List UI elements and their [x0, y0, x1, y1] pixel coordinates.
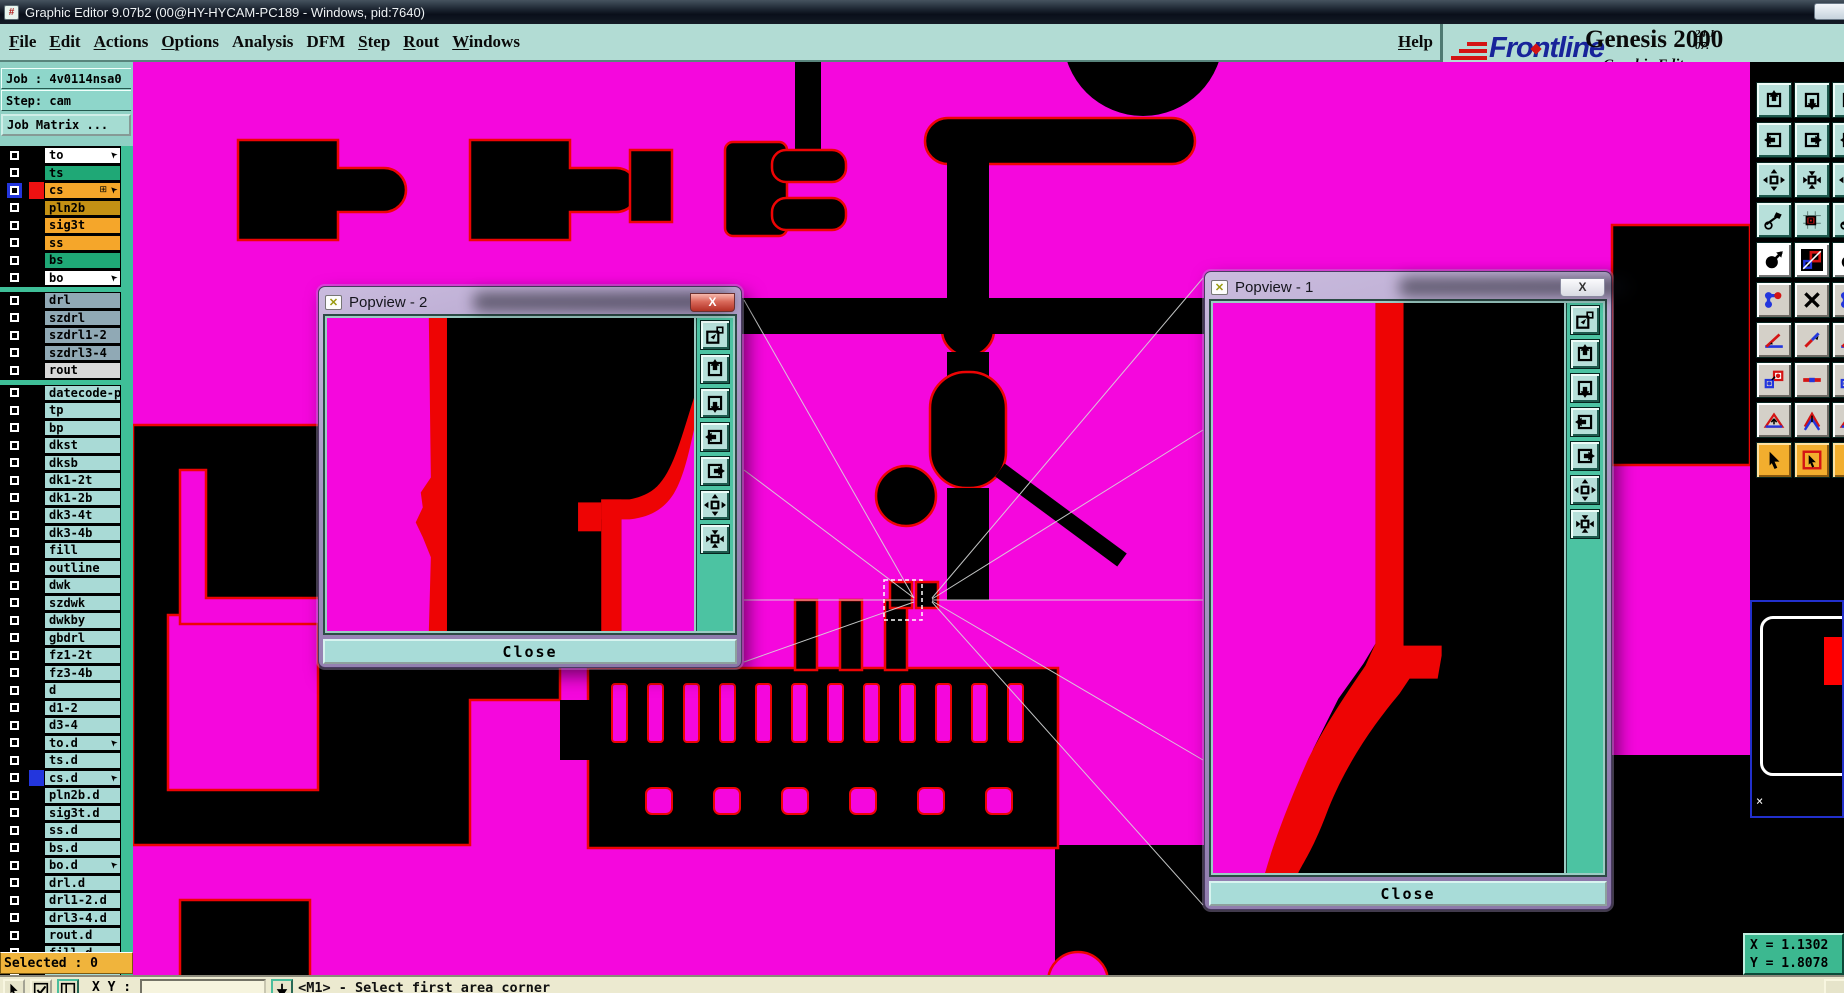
menu-item-help[interactable]: Help [1398, 32, 1433, 52]
layer-color-swatch[interactable] [29, 507, 44, 524]
layer-visibility-checkbox[interactable] [10, 221, 19, 230]
layer-color-swatch[interactable] [29, 927, 44, 944]
popview-1-canvas[interactable] [1213, 303, 1564, 873]
layer-name[interactable]: dk3-4t [44, 507, 121, 524]
tools-button[interactable] [1756, 202, 1792, 238]
layer-color-swatch[interactable] [29, 717, 44, 734]
layer-name[interactable]: szdrl [44, 310, 121, 327]
layer-row[interactable]: rout [0, 362, 121, 379]
layer-visibility-checkbox[interactable] [10, 773, 19, 782]
pan-down-button[interactable] [1570, 373, 1600, 403]
layer-visibility-checkbox[interactable] [10, 721, 19, 730]
clip-area-icon [1801, 209, 1823, 231]
window-title: Graphic Editor 9.07b2 (00@HY-HYCAM-PC189… [25, 5, 425, 20]
layer-row[interactable]: gbdrl [0, 630, 121, 647]
layer-name[interactable]: dk1-2t [44, 472, 121, 489]
layer-name[interactable]: datecode-pbo [44, 385, 121, 402]
layer-row[interactable]: fz1-2t [0, 647, 121, 664]
layer-visibility-checkbox[interactable] [10, 406, 19, 415]
measure-line-button[interactable] [1794, 322, 1830, 358]
layer-checkbox-cell [0, 703, 29, 712]
popview-2-close-button[interactable]: Close [323, 639, 737, 664]
toolbar-button-clipped[interactable] [1832, 122, 1844, 158]
layer-visibility-checkbox[interactable] [10, 528, 19, 537]
layer-row[interactable]: dk3-4t [0, 507, 121, 524]
tools-icon [1763, 209, 1785, 231]
layer-row[interactable]: drl [0, 292, 121, 309]
layer-visibility-checkbox[interactable] [10, 256, 19, 265]
layer-name[interactable]: pln2b [44, 200, 121, 217]
layer-color-swatch[interactable] [29, 165, 44, 182]
selected-count: Selected : 0 [0, 952, 133, 974]
layer-name[interactable]: bs [44, 252, 121, 269]
layer-row[interactable]: dwkby [0, 612, 121, 629]
layer-color-swatch[interactable] [29, 630, 44, 647]
layer-name[interactable]: outline [44, 560, 121, 577]
menu-item-edit[interactable]: Edit [49, 32, 80, 52]
pointer-mode-button[interactable] [1756, 442, 1792, 478]
zoom-contract-button[interactable] [1756, 162, 1792, 198]
popview-1-title: Popview - 1 [1235, 279, 1313, 296]
layer-color-swatch[interactable] [29, 147, 44, 164]
zoom-expand-button[interactable] [1794, 162, 1830, 198]
layer-checkbox-cell [0, 331, 29, 340]
frontline-speedlines-icon [1451, 42, 1487, 64]
layer-name[interactable]: rout.d [44, 927, 121, 944]
layer-visibility-checkbox[interactable] [10, 581, 19, 590]
layer-checkbox-cell [0, 616, 29, 625]
layer-name[interactable]: szdrl3-4 [44, 345, 121, 362]
layer-color-swatch[interactable] [29, 647, 44, 664]
zoom-expand-button[interactable] [700, 524, 730, 554]
layer-color-swatch[interactable] [29, 420, 44, 437]
clip-area-button[interactable] [1794, 202, 1830, 238]
popview-1-close-icon[interactable]: X [1560, 278, 1605, 297]
layer-name[interactable]: tp [44, 402, 121, 419]
zoom-contract-button[interactable] [700, 490, 730, 520]
layer-visibility-checkbox[interactable] [10, 843, 19, 852]
layer-color-swatch[interactable] [29, 182, 44, 199]
measure-line-icon [1801, 329, 1823, 351]
copy-feature-button[interactable] [1756, 362, 1792, 398]
layer-color-swatch[interactable] [29, 752, 44, 769]
layer-name[interactable]: d1-2 [44, 700, 121, 717]
layer-row[interactable]: ts [0, 165, 121, 182]
layer-visibility-checkbox[interactable] [10, 366, 19, 375]
layer-visibility-checkbox[interactable] [10, 186, 19, 195]
layer-name[interactable]: ts [44, 165, 121, 182]
pan-right-button[interactable] [700, 456, 730, 486]
popview-2-window[interactable]: ✕ Popview - 2 X Close [318, 286, 742, 668]
layer-row[interactable]: cs.d➤ [0, 770, 121, 787]
layer-color-swatch[interactable] [29, 385, 44, 402]
layer-color-swatch[interactable] [29, 490, 44, 507]
layer-visibility-checkbox[interactable] [10, 651, 19, 660]
minimap-panel[interactable]: × [1750, 600, 1844, 818]
layer-color-swatch[interactable] [29, 472, 44, 489]
measure-angle-icon [1763, 329, 1785, 351]
layer-row[interactable]: bs.d [0, 840, 121, 857]
layer-row[interactable]: fz3-4b [0, 665, 121, 682]
coordinate-input[interactable] [140, 979, 266, 993]
layer-row[interactable]: drl3-4.d [0, 910, 121, 927]
toolbar-button-clipped[interactable] [1832, 402, 1844, 438]
layer-color-swatch[interactable] [29, 665, 44, 682]
layer-color-swatch[interactable] [29, 542, 44, 559]
layer-visibility-checkbox[interactable] [10, 913, 19, 922]
menu-item-actions[interactable]: Actions [94, 32, 149, 52]
layer-color-swatch[interactable] [29, 910, 44, 927]
layer-row[interactable]: bo.d➤ [0, 857, 121, 874]
popview-2-titlebar[interactable]: ✕ Popview - 2 X [323, 290, 737, 314]
layer-color-swatch[interactable] [29, 822, 44, 839]
layer-color-swatch[interactable] [29, 840, 44, 857]
layer-checkbox-cell [0, 581, 29, 590]
toolbar-button-clipped[interactable] [1832, 322, 1844, 358]
layer-row[interactable]: to➤ [0, 147, 121, 164]
layer-color-swatch[interactable] [29, 217, 44, 234]
view-pan-left-icon [1763, 129, 1785, 151]
layer-visibility-checkbox[interactable] [10, 686, 19, 695]
layer-name[interactable]: szdrl1-2 [44, 327, 121, 344]
layer-name[interactable]: rout [44, 362, 121, 379]
layer-checkbox-cell [0, 913, 29, 922]
layer-visibility-checkbox[interactable] [10, 791, 19, 800]
layer-visibility-checkbox[interactable] [10, 348, 19, 357]
view-pan-right-icon [1801, 129, 1823, 151]
layer-name[interactable]: fz1-2t [44, 647, 121, 664]
layer-color-swatch[interactable] [29, 437, 44, 454]
layer-name[interactable]: pln2b.d [44, 787, 121, 804]
layer-visibility-checkbox[interactable] [10, 808, 19, 817]
layer-visibility-checkbox[interactable] [10, 633, 19, 642]
layer-compare-button[interactable] [1794, 242, 1830, 278]
minimap-origin-mark: × [1756, 794, 1763, 808]
down-arrow-icon[interactable] [271, 979, 293, 993]
layer-row[interactable]: datecode-pbo [0, 385, 121, 402]
popout-button[interactable] [700, 320, 730, 350]
layer-name[interactable]: bs.d [44, 840, 121, 857]
layer-visibility-checkbox[interactable] [10, 151, 19, 160]
layer-name[interactable]: drl1-2.d [44, 892, 121, 909]
add-arrow-button[interactable] [1794, 402, 1830, 438]
popview-2-canvas[interactable] [327, 318, 694, 631]
layer-visibility-checkbox[interactable] [10, 458, 19, 467]
layer-visibility-checkbox[interactable] [10, 273, 19, 282]
layer-row[interactable]: cs⊞➤ [0, 182, 121, 199]
menu-item-analysis[interactable]: Analysis [232, 32, 293, 52]
datetime-display: 24 J07: [1695, 28, 1714, 52]
layer-color-swatch[interactable] [29, 327, 44, 344]
layer-checkbox-cell [0, 151, 29, 160]
pan-left-button[interactable] [700, 422, 730, 452]
layer-name[interactable]: drl3-4.d [44, 910, 121, 927]
layer-visibility-checkbox[interactable] [10, 203, 19, 212]
layer-visibility-checkbox[interactable] [10, 168, 19, 177]
layer-color-swatch[interactable] [29, 770, 44, 787]
layer-visibility-checkbox[interactable] [10, 826, 19, 835]
layer-color-swatch[interactable] [29, 612, 44, 629]
popview-2-toolbar [696, 318, 733, 631]
layer-checkbox-cell [0, 186, 29, 195]
layer-row[interactable]: dk3-4b [0, 525, 121, 542]
layer-checkbox-cell [0, 686, 29, 695]
layer-color-swatch[interactable] [29, 892, 44, 909]
zoom-contract-icon [1763, 169, 1785, 191]
layer-name[interactable]: dk3-4b [44, 525, 121, 542]
layer-checkbox-cell [0, 843, 29, 852]
pan-up-button[interactable] [1570, 339, 1600, 369]
copy-feature-icon [1763, 369, 1785, 391]
job-matrix-button[interactable]: Job Matrix ... [1, 114, 131, 136]
stretch-feature-button[interactable] [1794, 362, 1830, 398]
layer-visibility-checkbox[interactable] [10, 756, 19, 765]
layer-row[interactable]: szdrl [0, 310, 121, 327]
layer-name[interactable]: gbdrl [44, 630, 121, 647]
layer-row[interactable]: bo➤ [0, 270, 121, 287]
layer-visibility-checkbox[interactable] [10, 441, 19, 450]
check-icon[interactable] [30, 979, 52, 993]
popview-1-toolbar [1566, 303, 1603, 873]
layer-color-swatch[interactable] [29, 875, 44, 892]
layer-name[interactable]: ss.d [44, 822, 121, 839]
layer-checkbox-cell [0, 668, 29, 677]
layer-visibility-checkbox[interactable] [10, 313, 19, 322]
layer-row[interactable]: ss.d [0, 822, 121, 839]
pan-left-button[interactable] [1570, 407, 1600, 437]
popout-button[interactable] [1570, 305, 1600, 335]
layer-visibility-checkbox[interactable] [10, 861, 19, 870]
popview-2-close-icon[interactable]: X [690, 293, 735, 312]
layer-visibility-checkbox[interactable] [10, 668, 19, 677]
add-polygon-button[interactable] [1756, 402, 1792, 438]
pan-right-button[interactable] [1570, 441, 1600, 471]
layer-name[interactable]: fill [44, 542, 121, 559]
menu-item-dfm[interactable]: DFM [306, 32, 345, 52]
layer-name[interactable]: szdwk [44, 595, 121, 612]
layer-visibility-checkbox[interactable] [10, 476, 19, 485]
layer-row[interactable]: szdrl3-4 [0, 345, 121, 362]
layer-name[interactable]: dwk [44, 577, 121, 594]
layer-row[interactable]: drl.d [0, 875, 121, 892]
layer-visibility-checkbox[interactable] [10, 896, 19, 905]
layer-visibility-checkbox[interactable] [10, 878, 19, 887]
pan-down-button[interactable] [700, 388, 730, 418]
layer-name[interactable]: dk1-2b [44, 490, 121, 507]
toolbar-button-clipped[interactable] [1832, 82, 1844, 118]
popview-1-window[interactable]: ✕ Popview - 1 X Close [1204, 271, 1612, 910]
layer-color-swatch[interactable] [29, 700, 44, 717]
layer-color-swatch[interactable] [29, 682, 44, 699]
layer-color-swatch[interactable] [29, 805, 44, 822]
layer-name[interactable]: ss [44, 235, 121, 252]
layer-visibility-checkbox[interactable] [10, 616, 19, 625]
layer-list-column: to➤tscs⊞➤pln2bsig3tssbsbo➤drlszdrlszdrl1… [0, 146, 121, 981]
layer-color-swatch[interactable] [29, 595, 44, 612]
view-pan-left-button[interactable] [1756, 122, 1792, 158]
view-pan-right-button[interactable] [1794, 122, 1830, 158]
pan-up-button[interactable] [700, 354, 730, 384]
layer-name[interactable]: d [44, 682, 121, 699]
menu-item-help[interactable]: Help [1398, 24, 1433, 60]
add-polygon-icon [1763, 409, 1785, 431]
layer-checkbox-cell [0, 528, 29, 537]
layer-color-swatch[interactable] [29, 310, 44, 327]
minimap-view-marker [1824, 637, 1844, 685]
layer-row[interactable]: drl1-2.d [0, 892, 121, 909]
window-titlebar[interactable]: # Graphic Editor 9.07b2 (00@HY-HYCAM-PC1… [0, 0, 1844, 24]
layer-name[interactable]: sig3t.d [44, 805, 121, 822]
layer-color-swatch[interactable] [29, 252, 44, 269]
layer-row[interactable]: d1-2 [0, 700, 121, 717]
layer-row[interactable]: dk1-2b [0, 490, 121, 507]
layer-name[interactable]: bp [44, 420, 121, 437]
layer-name[interactable]: drl [44, 292, 121, 309]
layer-color-swatch[interactable] [29, 857, 44, 874]
select-area-button[interactable] [1794, 442, 1830, 478]
popview-1-titlebar[interactable]: ✕ Popview - 1 X [1209, 275, 1607, 299]
layer-color-swatch[interactable] [29, 577, 44, 594]
layer-checkbox-cell [0, 826, 29, 835]
layer-checkbox-cell [0, 738, 29, 747]
layer-visibility-checkbox[interactable] [10, 598, 19, 607]
layer-visibility-checkbox[interactable] [10, 563, 19, 572]
layer-checkbox-cell [0, 296, 29, 305]
toolbar-button-clipped[interactable] [1832, 282, 1844, 318]
stretch-feature-icon [1801, 369, 1823, 391]
menu-item-step[interactable]: Step [358, 32, 390, 52]
zoom-expand-button[interactable] [1570, 509, 1600, 539]
layer-visibility-checkbox[interactable] [10, 546, 19, 555]
layer-checkbox-cell [0, 406, 29, 415]
toolbar-button-clipped[interactable] [1832, 202, 1844, 238]
layer-color-swatch[interactable] [29, 735, 44, 752]
layer-row[interactable]: szdrl1-2 [0, 327, 121, 344]
layer-checkbox-cell [0, 773, 29, 782]
layer-name[interactable]: drl.d [44, 875, 121, 892]
layer-color-swatch[interactable] [29, 345, 44, 362]
layer-row[interactable]: dkst [0, 437, 121, 454]
menu-item-file[interactable]: File [9, 32, 36, 52]
view-pan-down-icon [1801, 89, 1823, 111]
layer-color-swatch[interactable] [29, 362, 44, 379]
view-pan-up-button[interactable] [1756, 82, 1792, 118]
layer-visibility-checkbox[interactable] [10, 493, 19, 502]
layer-row[interactable]: bs [0, 252, 121, 269]
measure-angle-button[interactable] [1756, 322, 1792, 358]
view-pan-up-icon [1763, 89, 1785, 111]
statusbar-corner-button[interactable] [1824, 979, 1844, 993]
layer-row[interactable]: sig3t [0, 217, 121, 234]
zoom-contract-button[interactable] [1570, 475, 1600, 505]
layer-visibility-checkbox[interactable] [10, 511, 19, 520]
layer-row[interactable]: szdwk [0, 595, 121, 612]
layer-visibility-checkbox[interactable] [10, 238, 19, 247]
layer-checkbox-cell [0, 563, 29, 572]
layer-visibility-checkbox[interactable] [10, 738, 19, 747]
layer-checkbox-cell [0, 721, 29, 730]
popview-1-body [1209, 299, 1607, 877]
popview-1-close-button[interactable]: Close [1209, 881, 1607, 906]
layer-row[interactable]: tp [0, 402, 121, 419]
layer-row[interactable]: dwk [0, 577, 121, 594]
layer-row[interactable]: d [0, 682, 121, 699]
menu-bar: FileEditActionsOptionsAnalysisDFMStepRou… [0, 24, 1440, 62]
layer-visibility-checkbox[interactable] [10, 931, 19, 940]
delete-feature-button[interactable] [1794, 282, 1830, 318]
layer-row[interactable]: bp [0, 420, 121, 437]
layer-row[interactable]: ss [0, 235, 121, 252]
layer-row[interactable]: rout.d [0, 927, 121, 944]
layer-color-swatch[interactable] [29, 787, 44, 804]
xy-label: X Y : [84, 979, 135, 993]
layer-color-swatch[interactable] [29, 560, 44, 577]
layer-checkbox-cell [0, 808, 29, 817]
layer-checkbox-cell [0, 348, 29, 357]
view-pan-down-button[interactable] [1794, 82, 1830, 118]
layer-name[interactable]: sig3t [44, 217, 121, 234]
layer-name[interactable]: dwkby [44, 612, 121, 629]
layer-row[interactable]: dksb [0, 455, 121, 472]
toolbar-button-clipped[interactable] [1832, 242, 1844, 278]
cursor-icon[interactable] [3, 979, 25, 993]
layer-color-swatch[interactable] [29, 525, 44, 542]
layer-color-swatch[interactable] [29, 200, 44, 217]
layer-name[interactable]: dkst [44, 437, 121, 454]
layer-row[interactable]: d3-4 [0, 717, 121, 734]
layer-row[interactable]: outline [0, 560, 121, 577]
menu-item-rout[interactable]: Rout [403, 32, 439, 52]
toolbar-button-clipped[interactable] [1832, 362, 1844, 398]
select-feature-icon [1763, 249, 1785, 271]
select-feature-button[interactable] [1756, 242, 1792, 278]
layer-visibility-checkbox[interactable] [10, 703, 19, 712]
layer-row[interactable]: to.d➤ [0, 735, 121, 752]
layer-color-swatch[interactable] [29, 455, 44, 472]
layer-checkbox-cell [0, 861, 29, 870]
layer-checkbox-cell [0, 651, 29, 660]
layer-name[interactable]: dksb [44, 455, 121, 472]
layer-visibility-checkbox[interactable] [10, 388, 19, 397]
net-select-button[interactable] [1756, 282, 1792, 318]
layer-checkbox-cell [0, 423, 29, 432]
layer-name[interactable]: fz3-4b [44, 665, 121, 682]
toolbar-button-clipped[interactable] [1832, 162, 1844, 198]
layer-name[interactable]: ts.d [44, 752, 121, 769]
popview-window-icon: ✕ [1211, 280, 1228, 295]
layer-row[interactable]: pln2b.d [0, 787, 121, 804]
layer-color-swatch[interactable] [29, 235, 44, 252]
layer-color-swatch[interactable] [29, 292, 44, 309]
layer-row[interactable]: pln2b [0, 200, 121, 217]
layer-row[interactable]: fill [0, 542, 121, 559]
menu-item-windows[interactable]: Windows [452, 32, 520, 52]
coord-x: X = 1.1302 [1750, 938, 1828, 953]
layer-visibility-checkbox[interactable] [10, 423, 19, 432]
panel-icon[interactable] [57, 979, 79, 993]
minimize-button[interactable] [1814, 3, 1844, 20]
layer-color-swatch[interactable] [29, 402, 44, 419]
layer-row[interactable]: sig3t.d [0, 805, 121, 822]
layer-visibility-checkbox[interactable] [10, 296, 19, 305]
layer-row[interactable]: ts.d [0, 752, 121, 769]
menu-item-options[interactable]: Options [161, 32, 219, 52]
layer-visibility-checkbox[interactable] [10, 331, 19, 340]
toolbar-button-clipped[interactable] [1832, 442, 1844, 478]
layer-row[interactable]: dk1-2t [0, 472, 121, 489]
layer-color-swatch[interactable] [29, 270, 44, 287]
layer-name[interactable]: d3-4 [44, 717, 121, 734]
